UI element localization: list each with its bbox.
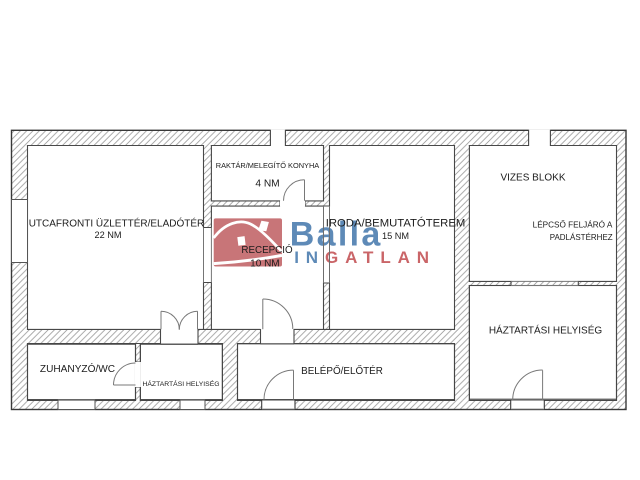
svg-text:15 NM: 15 NM xyxy=(382,231,409,241)
svg-text:4 NM: 4 NM xyxy=(255,179,279,190)
svg-text:UTCAFRONTI ÜZLETTÉR/ELADÓTÉR: UTCAFRONTI ÜZLETTÉR/ELADÓTÉR xyxy=(29,216,205,229)
svg-text:VIZES BLOKK: VIZES BLOKK xyxy=(500,173,565,184)
svg-text:HÁZTARTÁSI HELYISÉG: HÁZTARTÁSI HELYISÉG xyxy=(142,379,219,388)
svg-text:PADLÁSTÉRHEZ: PADLÁSTÉRHEZ xyxy=(550,233,613,242)
svg-text:RAKTÁR/MELEGÍTŐ KONYHA: RAKTÁR/MELEGÍTŐ KONYHA xyxy=(216,161,320,170)
svg-text:BELÉPŐ/ELŐTÉR: BELÉPŐ/ELŐTÉR xyxy=(301,366,383,377)
svg-text:22 NM: 22 NM xyxy=(94,230,121,240)
svg-text:10 NM: 10 NM xyxy=(250,258,279,269)
svg-text:INGATLAN: INGATLAN xyxy=(294,248,436,267)
svg-text:RECEPCIÓ: RECEPCIÓ xyxy=(241,245,293,256)
svg-text:IRODA/BEMUTATÓTEREM: IRODA/BEMUTATÓTEREM xyxy=(326,216,466,229)
svg-text:HÁZTARTÁSI HELYISÉG: HÁZTARTÁSI HELYISÉG xyxy=(489,324,603,337)
svg-text:ZUHANYZÓ/WC: ZUHANYZÓ/WC xyxy=(40,362,115,375)
svg-text:LÉPCSŐ FELJÁRÓ A: LÉPCSŐ FELJÁRÓ A xyxy=(533,220,613,230)
